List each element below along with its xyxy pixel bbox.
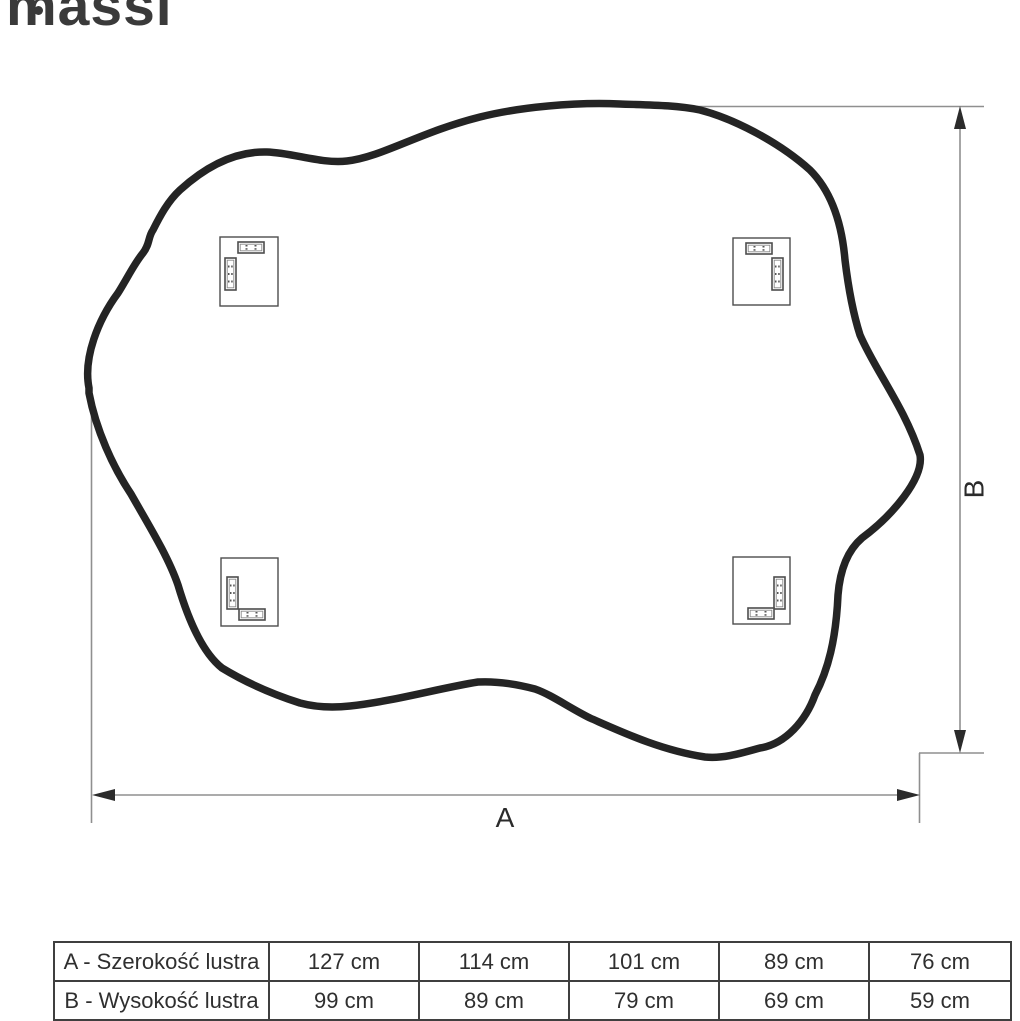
table-row-height: B - Wysokość lustra 99 cm 89 cm 79 cm 69…	[54, 981, 1011, 1020]
bracket-slot-horizontal	[746, 243, 772, 254]
mirror-outline	[88, 104, 921, 758]
table-cell: 79 cm	[569, 981, 719, 1020]
bracket-slot-horizontal	[238, 242, 264, 253]
bracket-slot-vertical	[772, 258, 783, 290]
height-dimension-label: B	[959, 480, 990, 499]
table-cell: 101 cm	[569, 942, 719, 981]
arrow-left-icon	[92, 789, 115, 801]
arrow-up-icon	[954, 106, 966, 129]
bracket-slot-vertical	[227, 577, 238, 609]
arrow-down-icon	[954, 730, 966, 753]
table-cell: 76 cm	[869, 942, 1011, 981]
bracket-slot-horizontal	[239, 609, 265, 620]
table-cell: 89 cm	[419, 981, 569, 1020]
table-cell: 59 cm	[869, 981, 1011, 1020]
table-cell: 114 cm	[419, 942, 569, 981]
arrow-right-icon	[897, 789, 920, 801]
mounting-bracket-top-left	[220, 237, 278, 306]
bracket-slot-vertical	[774, 577, 785, 609]
mounting-bracket-bottom-right	[733, 557, 790, 624]
bracket-slot-horizontal	[748, 608, 774, 619]
table-cell: 127 cm	[269, 942, 419, 981]
table-cell: 99 cm	[269, 981, 419, 1020]
width-dimension-label: A	[496, 802, 515, 833]
row-label: A - Szerokość lustra	[54, 942, 269, 981]
mirror-dimension-diagram: B A	[0, 0, 1020, 900]
mounting-bracket-bottom-left	[221, 558, 278, 626]
table-cell: 69 cm	[719, 981, 869, 1020]
table-row-width: A - Szerokość lustra 127 cm 114 cm 101 c…	[54, 942, 1011, 981]
dimensions-table: A - Szerokość lustra 127 cm 114 cm 101 c…	[53, 941, 1012, 1021]
table-cell: 89 cm	[719, 942, 869, 981]
mounting-bracket-top-right	[733, 238, 790, 305]
row-label: B - Wysokość lustra	[54, 981, 269, 1020]
bracket-slot-vertical	[225, 258, 236, 290]
